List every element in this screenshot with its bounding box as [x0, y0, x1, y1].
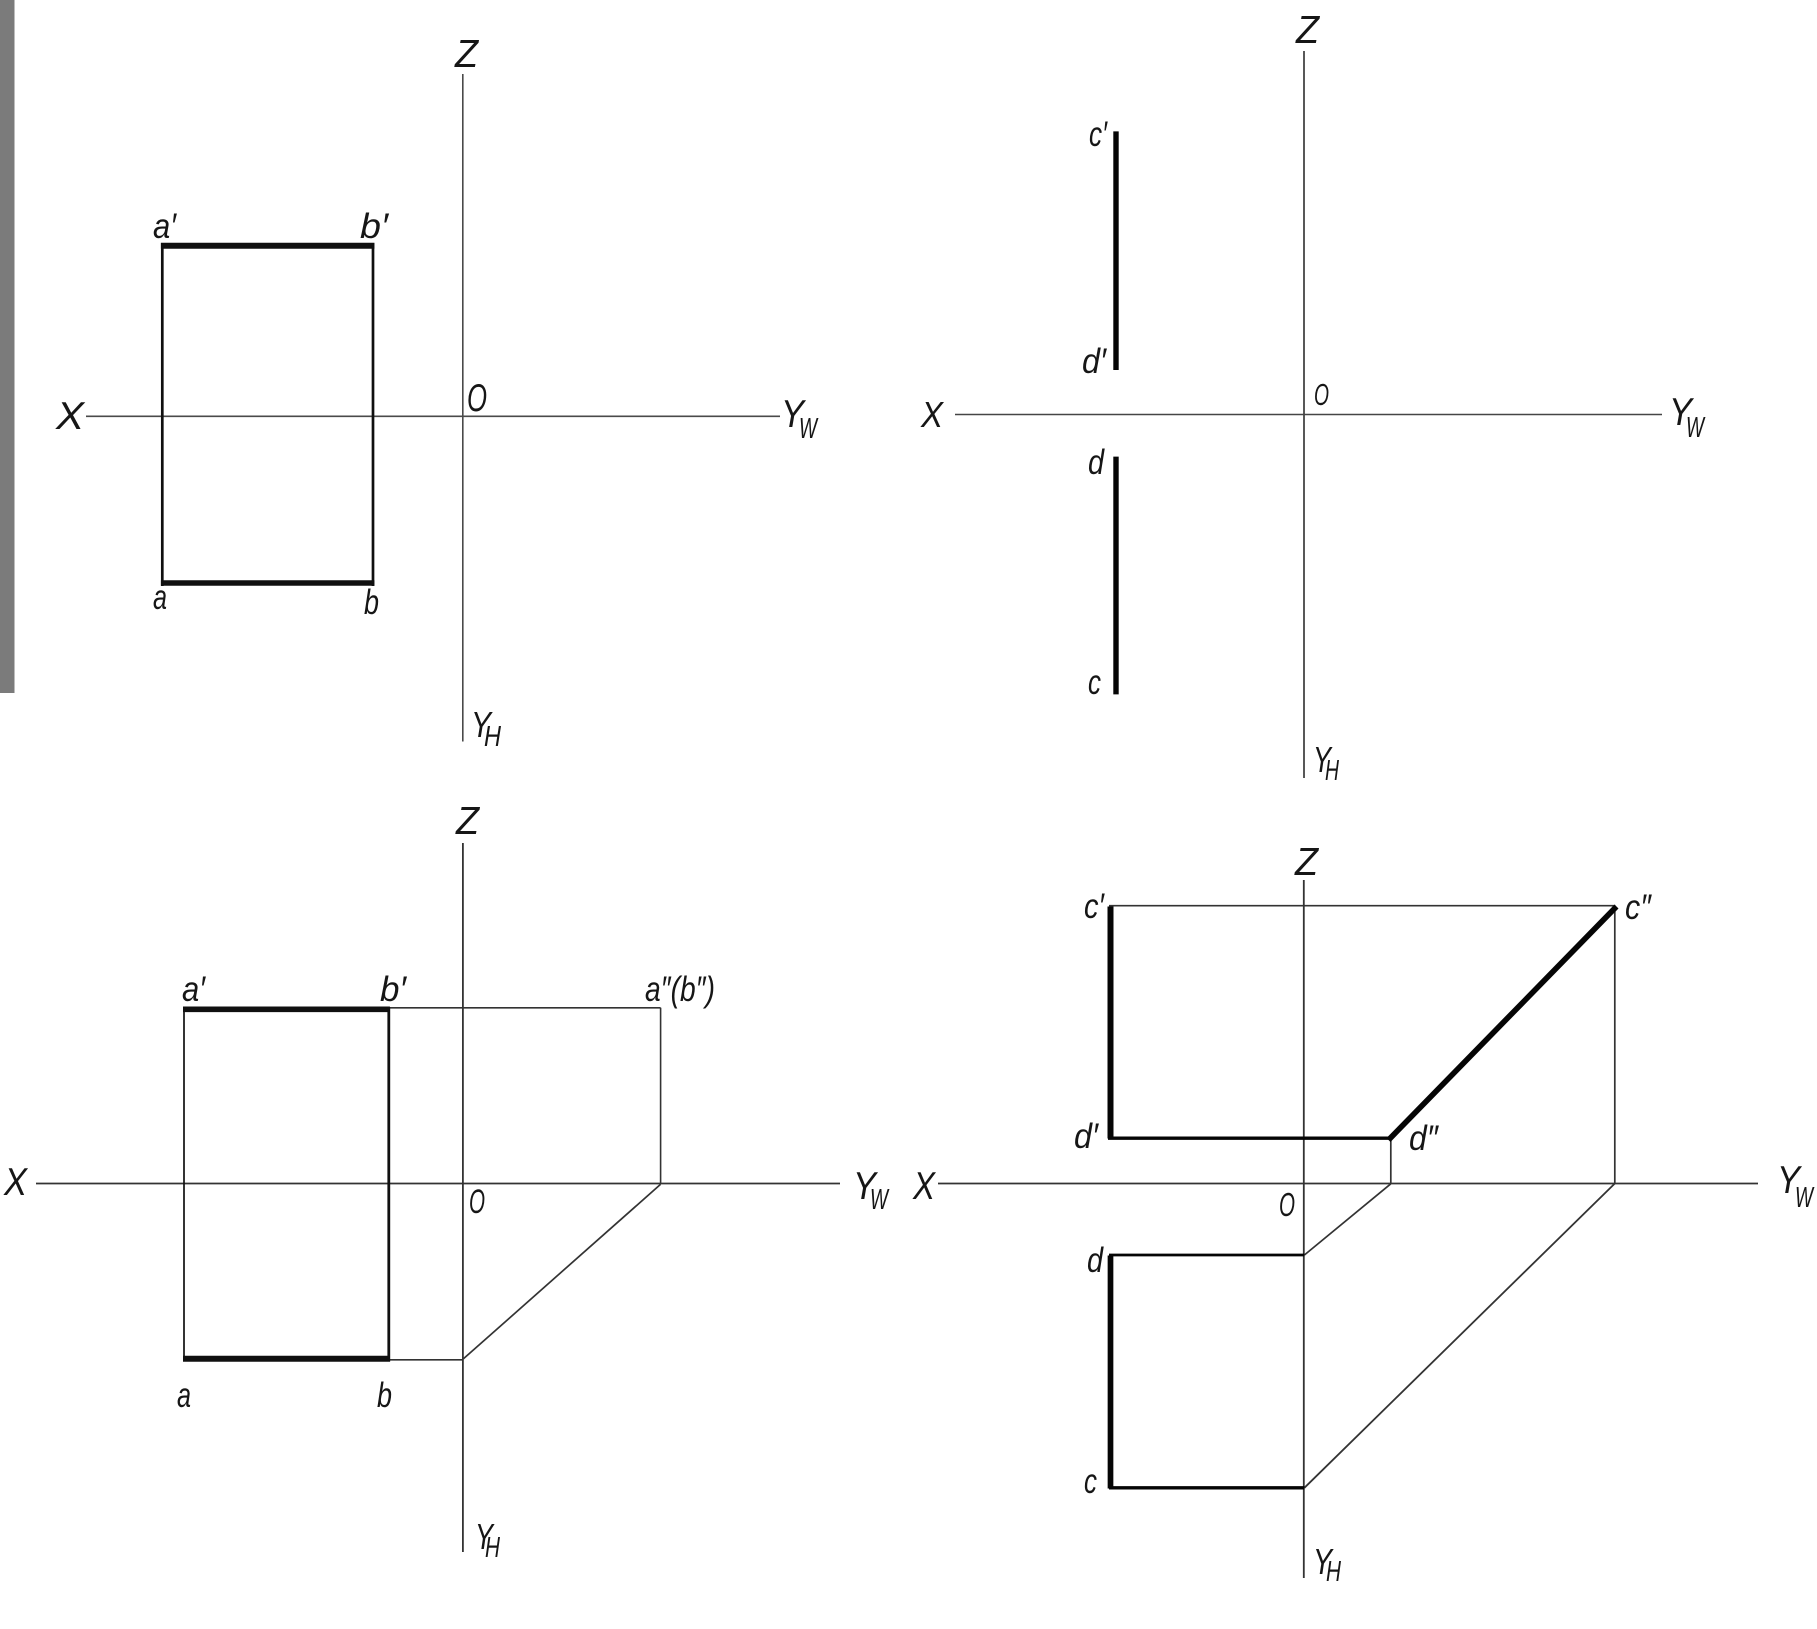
svg-text:a: a: [153, 578, 167, 617]
svg-text:c: c: [1084, 1462, 1097, 1501]
svg-text:b′: b′: [360, 207, 390, 246]
svg-text:W: W: [1686, 412, 1706, 444]
svg-text:H: H: [485, 1532, 500, 1564]
svg-text:b: b: [364, 583, 379, 622]
svg-text:W: W: [1795, 1182, 1815, 1214]
svg-text:a′: a′: [182, 970, 206, 1009]
svg-text:d′: d′: [1082, 342, 1107, 381]
svg-text:c: c: [1088, 663, 1101, 702]
svg-text:O: O: [1279, 1186, 1295, 1223]
svg-text:X: X: [912, 1165, 937, 1208]
svg-text:c′: c′: [1084, 887, 1105, 926]
svg-text:d′: d′: [1074, 1117, 1099, 1156]
svg-text:X: X: [3, 1161, 29, 1204]
svg-text:W: W: [799, 413, 819, 445]
svg-text:Z: Z: [454, 33, 479, 76]
svg-text:H: H: [1326, 1556, 1341, 1588]
svg-text:X: X: [920, 394, 945, 435]
svg-text:c′: c′: [1089, 115, 1108, 154]
svg-text:a″(b″): a″(b″): [645, 970, 715, 1009]
svg-text:Z: Z: [1294, 841, 1319, 884]
svg-text:b′: b′: [380, 970, 407, 1009]
svg-text:H: H: [1325, 755, 1339, 787]
svg-text:Z: Z: [455, 800, 480, 843]
svg-text:d: d: [1087, 1241, 1104, 1280]
svg-text:O: O: [469, 1183, 485, 1221]
svg-text:W: W: [870, 1184, 890, 1216]
svg-text:c″: c″: [1625, 888, 1652, 927]
svg-text:O: O: [1314, 377, 1329, 412]
svg-text:d″: d″: [1409, 1119, 1439, 1158]
svg-text:a′: a′: [153, 207, 177, 246]
svg-text:Z: Z: [1295, 9, 1320, 52]
svg-text:X: X: [55, 395, 86, 438]
svg-text:b: b: [377, 1376, 392, 1415]
svg-text:d: d: [1088, 443, 1105, 482]
svg-text:O: O: [467, 377, 487, 420]
svg-text:H: H: [484, 721, 501, 753]
svg-text:a: a: [177, 1376, 191, 1415]
